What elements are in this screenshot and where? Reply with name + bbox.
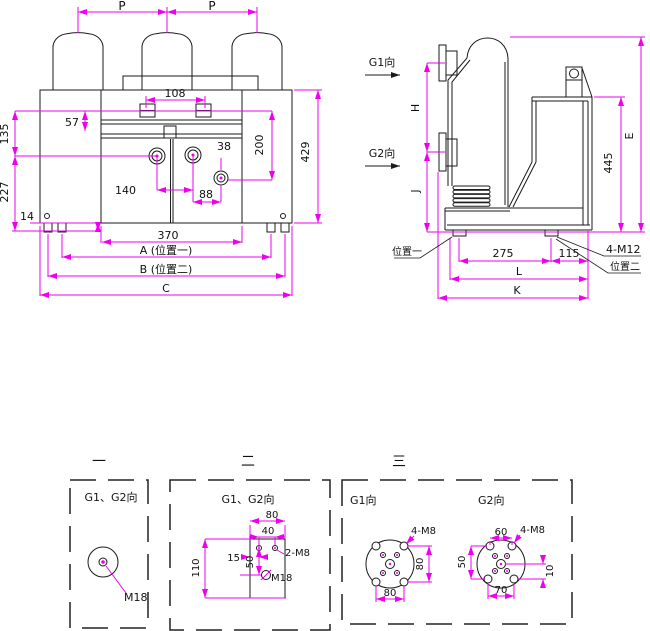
position2-label: 位置二: [610, 260, 640, 273]
dim-38: 38: [217, 140, 231, 153]
view2-title: 二: [241, 454, 255, 470]
g2-dim-70: 70: [495, 585, 508, 596]
dim-J: J: [409, 189, 422, 193]
dim-135: 135: [0, 124, 11, 145]
view3-g1-label: G1向: [350, 493, 377, 507]
dim-429: 429: [299, 142, 312, 163]
dim-115: 115: [559, 247, 580, 260]
view2-dim-80: 80: [266, 510, 279, 521]
dim-p-left: P: [118, 0, 125, 13]
view1-title: 一: [92, 454, 106, 470]
dim-200: 200: [253, 135, 266, 156]
position1-label: 位置一: [392, 245, 422, 258]
engineering-drawing-page: P P 108 57 135 227 14 38 200 429 140 88 …: [0, 0, 650, 631]
g1-dim-80h: 80: [384, 588, 397, 599]
dim-57: 57: [65, 116, 79, 129]
small-port-center: [220, 177, 223, 180]
view2-direction-label: G1、G2向: [221, 492, 274, 506]
view3-g2-label: G2向: [478, 493, 505, 507]
background: [0, 0, 650, 631]
dim-p-right: P: [208, 0, 215, 13]
view3-title: 三: [392, 454, 406, 470]
view1-direction-label: G1、G2向: [84, 490, 137, 504]
corner-hole-right: [281, 214, 286, 219]
dim-88: 88: [199, 188, 213, 201]
dim-275: 275: [493, 247, 514, 260]
dim-108: 108: [165, 87, 186, 100]
g1-dim-80v: 80: [415, 558, 426, 571]
g2-dim-50: 50: [457, 556, 468, 569]
bracket-hole: [570, 69, 579, 78]
corner-hole-left: [45, 214, 50, 219]
view2-m18-label: M18: [271, 573, 292, 584]
dim-C: C: [162, 282, 170, 295]
drawing-canvas: P P 108 57 135 227 14 38 200 429 140 88 …: [0, 0, 650, 631]
dim-E: E: [623, 132, 636, 139]
dim-445: 445: [602, 153, 615, 174]
view2-dim-15: 15: [227, 553, 240, 564]
g2-4m8-label: 4-M8: [520, 525, 545, 536]
view1-hole-center: [101, 560, 105, 564]
view2-dim-110: 110: [191, 558, 202, 577]
view2-dim-40: 40: [262, 526, 275, 537]
dim-227: 227: [0, 182, 11, 203]
g1-direction-label: G1向: [369, 55, 396, 69]
g1-4m8-label: 4-M8: [411, 526, 436, 537]
g2-dim-10: 10: [545, 565, 556, 578]
view2-dim-50: 50: [245, 556, 256, 569]
view2-m8-right-center: [274, 547, 276, 549]
view1-m18-label: M18: [124, 591, 148, 604]
dim-140: 140: [115, 184, 136, 197]
dim-B-pos2: B (位置二): [140, 262, 193, 276]
g2-direction-label: G2向: [369, 146, 396, 160]
dim-H: H: [409, 104, 422, 112]
dim-14: 14: [20, 210, 34, 223]
bolt-4m12-label: 4-M12: [606, 243, 640, 256]
dim-A-pos1: A (位置一): [140, 243, 193, 257]
view2-2m8-label: 2-M8: [285, 548, 310, 559]
dim-L: L: [516, 265, 523, 278]
dim-K: K: [513, 284, 521, 297]
dim-370: 370: [158, 229, 179, 242]
g2-dim-60: 60: [495, 527, 508, 538]
